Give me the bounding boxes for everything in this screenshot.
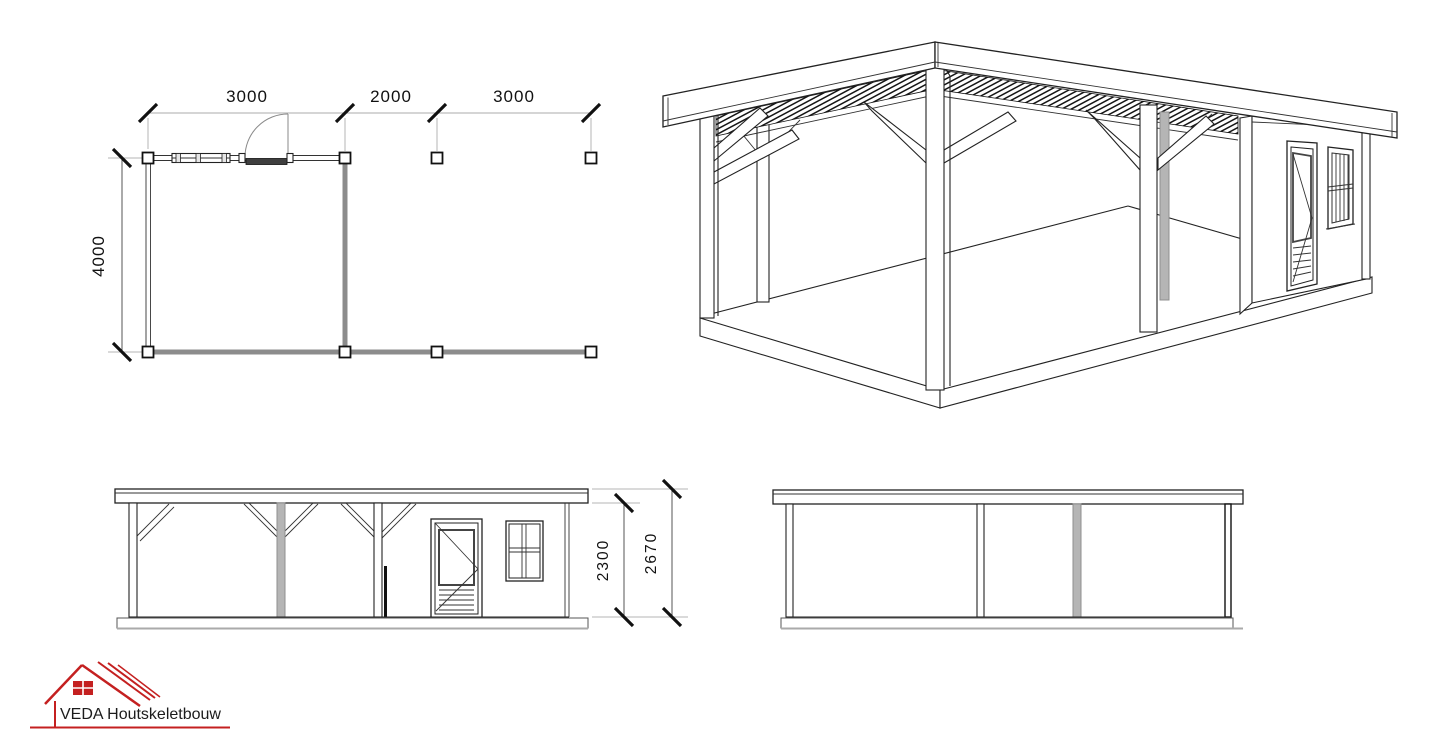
elev1-base [117,617,588,629]
iso-center-post [864,66,1016,390]
floor-plan: 3000 2000 3000 4000 [89,87,600,361]
plan-posts [143,153,597,358]
front-elevation: 2300 2670 [115,480,688,629]
elev1-dim-total-height: 2670 [643,532,660,574]
elev2-posts [786,504,1231,617]
plan-dim-bay2: 2000 [370,87,412,106]
plan-dim-bay3: 3000 [493,87,535,106]
elev1-posts [129,503,569,617]
plan-dim-bay1: 3000 [226,87,268,106]
plan-door-symbol [239,114,293,165]
elev1-gray-post [277,503,285,617]
drawing-sheet: 3000 2000 3000 4000 [0,0,1450,740]
iso-door [1287,141,1317,291]
elev1-door [431,519,482,618]
plan-dimension-chain-top: 3000 2000 3000 [139,87,600,151]
plan-dim-depth: 4000 [89,235,108,277]
elev1-roof [115,489,588,503]
iso-left-post [700,108,799,318]
plan-door-leaf [246,159,287,165]
elev2-roof [773,490,1243,504]
elev1-dim-clear-height: 2300 [595,539,612,581]
iso-middle-posts [1086,105,1214,332]
isometric-view [663,42,1397,408]
elev2-gray-post [1073,504,1081,617]
logo-text: VEDA Houtskeletbouw [60,706,221,723]
elev1-dimensions: 2300 2670 [592,480,688,626]
company-logo: VEDA Houtskeletbouw [30,662,230,728]
plan-walls [146,156,589,353]
elev2-base [781,617,1243,629]
plan-dimension-depth: 4000 [89,149,144,361]
elev1-window [506,521,543,581]
iso-window [1326,147,1355,229]
plan-window-symbol [172,154,230,163]
iso-corner-post [1362,120,1370,279]
rear-elevation [773,490,1243,629]
